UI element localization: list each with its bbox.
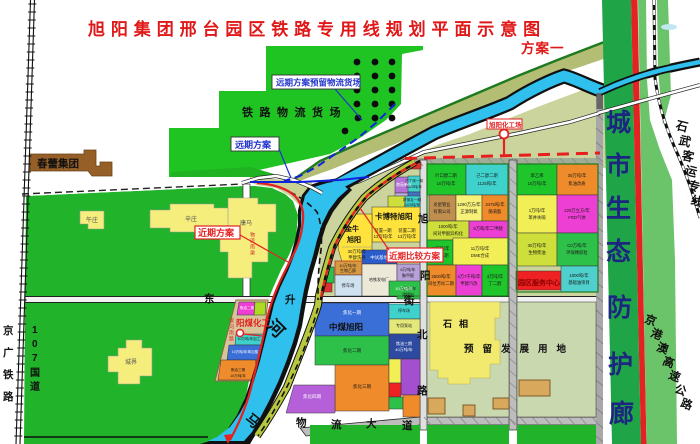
svg-text:焦化四期: 焦化四期 — [303, 393, 321, 400]
svg-text:广: 广 — [3, 346, 14, 359]
svg-text:生: 生 — [606, 195, 631, 223]
svg-text:FRD气体: FRD气体 — [568, 214, 586, 221]
svg-text:停车场: 停车场 — [398, 307, 410, 313]
svg-text:0: 0 — [32, 339, 38, 350]
svg-text:1万吨/年: 1万吨/年 — [529, 207, 546, 214]
svg-text:1290万方/年: 1290万方/年 — [457, 201, 481, 208]
svg-text:生物柴油: 生物柴油 — [528, 249, 545, 256]
svg-text:聚甲醛: 聚甲醛 — [402, 272, 414, 278]
svg-text:1425吨/年: 1425吨/年 — [404, 202, 421, 207]
svg-text:旭阳集团邢台园区铁路专用线规划平面示意图: 旭阳集团邢台园区铁路专用线规划平面示意图 — [87, 19, 546, 39]
svg-text:卡博特旭阳: 卡博特旭阳 — [375, 211, 413, 221]
svg-text:路: 路 — [417, 384, 428, 397]
svg-text:1000吨/年: 1000吨/年 — [438, 223, 458, 230]
svg-text:己二醇二期: 己二醇二期 — [476, 172, 497, 179]
svg-text:焦油三期: 焦油三期 — [231, 367, 246, 372]
svg-text:焦化一期: 焦化一期 — [343, 309, 361, 316]
svg-text:甲醇汽改: 甲醇汽改 — [460, 280, 478, 287]
svg-text:1: 1 — [32, 325, 38, 336]
svg-text:1000吨/年: 1000吨/年 — [569, 272, 589, 279]
svg-text:10万吨/年: 10万吨/年 — [230, 373, 246, 378]
svg-text:8万吨/年: 8万吨/年 — [400, 266, 415, 272]
svg-text:北: 北 — [417, 328, 428, 341]
svg-text:铁路物流货场: 铁路物流货场 — [242, 105, 347, 119]
svg-text:道: 道 — [30, 380, 40, 393]
svg-text:13万吨/年: 13万吨/年 — [374, 233, 394, 240]
svg-text:哈铁发电厂: 哈铁发电厂 — [369, 276, 389, 282]
svg-text:220万立方/年: 220万立方/年 — [564, 207, 590, 214]
svg-text:龙星管业: 龙星管业 — [433, 201, 451, 208]
svg-text:叶口醇二期: 叶口醇二期 — [435, 172, 456, 179]
svg-text:升: 升 — [285, 293, 296, 306]
svg-text:30万吨/年: 30万吨/年 — [528, 242, 548, 249]
svg-text:护: 护 — [608, 351, 633, 379]
svg-text:1425吨/年: 1425吨/年 — [406, 184, 423, 189]
svg-text:2500吨/年: 2500吨/年 — [431, 273, 451, 280]
svg-text:DME合成: DME合成 — [471, 252, 490, 259]
svg-text:10万吨/年: 10万吨/年 — [395, 285, 413, 291]
svg-text:中煤旭阳: 中煤旭阳 — [329, 322, 363, 332]
svg-text:廊: 廊 — [609, 399, 634, 428]
svg-text:11万吨/年: 11万吨/年 — [471, 245, 490, 252]
svg-text:物流南渠: 物流南渠 — [249, 231, 255, 256]
svg-text:3475吨/年: 3475吨/年 — [485, 201, 505, 208]
svg-text:路: 路 — [3, 390, 14, 403]
svg-text:道: 道 — [402, 419, 413, 432]
svg-text:旭阳化工场: 旭阳化工场 — [488, 120, 522, 129]
svg-text:旭阳: 旭阳 — [346, 235, 361, 244]
svg-text:康马: 康马 — [240, 219, 252, 227]
svg-text:1125吨/年: 1125吨/年 — [477, 180, 497, 187]
svg-text:金牛: 金牛 — [344, 224, 359, 233]
svg-text:焦油三期: 焦油三期 — [396, 340, 412, 346]
svg-text:10万吨/年: 10万吨/年 — [437, 180, 457, 187]
svg-text:10万吨/年苯加氢: 10万吨/年苯加氢 — [232, 349, 259, 354]
svg-text:好丽友一期: 好丽友一期 — [403, 197, 421, 202]
svg-text:午庄: 午庄 — [86, 216, 98, 224]
svg-text:焦化二期: 焦化二期 — [343, 347, 361, 354]
svg-text:己丁烷一期: 己丁烷一期 — [405, 178, 423, 183]
svg-text:间位芳纶二期: 间位芳纶二期 — [428, 280, 454, 287]
svg-text:远期方案预留物流货场: 远期方案预留物流货场 — [276, 78, 362, 88]
svg-text:丁二醇: 丁二醇 — [489, 280, 503, 287]
svg-text:街: 街 — [403, 294, 415, 307]
svg-text:预留发展用地: 预留发展用地 — [464, 343, 575, 355]
svg-text:方案一: 方案一 — [521, 40, 565, 56]
svg-text:有限公司: 有限公司 — [433, 208, 450, 215]
svg-text:专用泵站: 专用泵站 — [396, 322, 412, 328]
svg-text:C0万吨/年: C0万吨/年 — [567, 242, 587, 249]
svg-text:13万吨/年: 13万吨/年 — [398, 233, 418, 240]
svg-text:基础油项目: 基础油项目 — [568, 279, 589, 286]
svg-text:园区服务中心: 园区服务中心 — [518, 278, 560, 287]
svg-text:间对甲酚异构化: 间对甲酚异构化 — [433, 230, 464, 237]
svg-text:甲醇洗涤: 甲醇洗涤 — [348, 254, 366, 261]
svg-text:城界: 城界 — [125, 359, 137, 366]
svg-text:30万吨/年: 30万吨/年 — [568, 172, 588, 179]
svg-text:东: 东 — [204, 292, 215, 305]
svg-text:远期方案: 远期方案 — [235, 139, 272, 150]
svg-text:城: 城 — [606, 109, 631, 137]
svg-text:3万吨/年: 3万吨/年 — [487, 273, 504, 280]
svg-text:酶菊酯: 酶菊酯 — [489, 208, 503, 215]
svg-text:大: 大 — [366, 417, 377, 430]
svg-text:流: 流 — [331, 418, 342, 431]
svg-text:市: 市 — [606, 151, 631, 180]
svg-text:防: 防 — [607, 294, 632, 322]
svg-text:国: 国 — [30, 367, 40, 379]
svg-text:中试基地: 中试基地 — [370, 254, 388, 261]
svg-text:近期方案: 近期方案 — [198, 227, 235, 238]
svg-text:焦油改质: 焦油改质 — [568, 180, 586, 187]
svg-text:春蕾集团: 春蕾集团 — [37, 157, 79, 170]
svg-text:环保橡胶粒: 环保橡胶粒 — [566, 249, 588, 256]
svg-text:正源制氧: 正源制氧 — [460, 208, 478, 215]
svg-text:旭: 旭 — [417, 212, 429, 225]
svg-text:停车场: 停车场 — [342, 282, 356, 289]
svg-text:苯并呋喃: 苯并呋喃 — [528, 214, 546, 221]
svg-text:态: 态 — [606, 238, 631, 266]
svg-text:5万吨/年二甲醚: 5万吨/年二甲醚 — [473, 225, 503, 232]
svg-text:铁: 铁 — [3, 368, 14, 381]
svg-text:辛庄: 辛庄 — [185, 215, 197, 223]
svg-text:30万吨/年: 30万吨/年 — [348, 248, 368, 255]
svg-text:专: 专 — [686, 177, 700, 194]
svg-text:滨河南路: 滨河南路 — [228, 317, 234, 342]
svg-text:7: 7 — [32, 353, 38, 364]
svg-text:阳: 阳 — [420, 270, 431, 282]
svg-text:4万7千吨/年: 4万7千吨/年 — [457, 273, 481, 280]
svg-text:苯乙烯: 苯乙烯 — [531, 172, 545, 179]
svg-text:10万吨/年: 10万吨/年 — [528, 180, 548, 187]
svg-text:生物乙醇: 生物乙醇 — [340, 267, 356, 273]
svg-text:石相: 石相 — [442, 318, 475, 329]
svg-text:40万吨/年: 40万吨/年 — [395, 346, 413, 352]
svg-text:近期比较方案: 近期比较方案 — [389, 251, 441, 261]
svg-text:焦油二期: 焦油二期 — [240, 305, 255, 310]
svg-text:装置二期: 装置二期 — [398, 227, 415, 234]
svg-text:焦化三期: 焦化三期 — [353, 383, 371, 390]
svg-text:京: 京 — [3, 324, 14, 337]
svg-text:物: 物 — [296, 416, 307, 429]
